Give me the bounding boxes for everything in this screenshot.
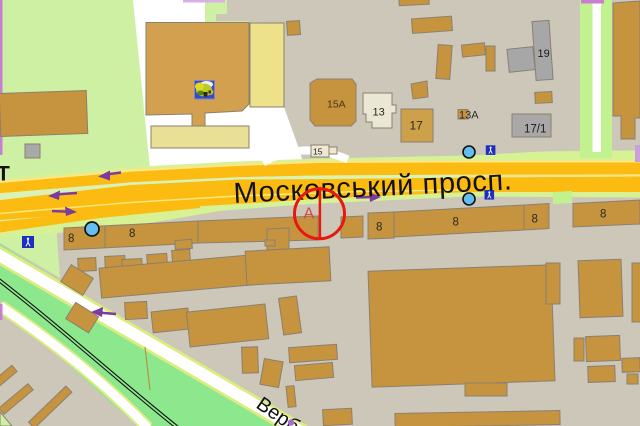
svg-text:17: 17: [410, 119, 424, 133]
svg-text:8: 8: [600, 209, 606, 221]
svg-text:19: 19: [538, 48, 550, 60]
svg-text:13: 13: [373, 107, 385, 119]
svg-text:Т: Т: [0, 163, 10, 186]
svg-text:8: 8: [68, 233, 74, 245]
svg-text:8: 8: [129, 228, 135, 240]
svg-text:8: 8: [532, 214, 538, 226]
svg-text:15А: 15А: [327, 99, 346, 111]
svg-text:А: А: [304, 206, 315, 223]
svg-text:13А: 13А: [459, 110, 479, 122]
svg-text:17/1: 17/1: [524, 124, 546, 136]
svg-text:8: 8: [453, 217, 459, 229]
svg-text:8: 8: [376, 222, 382, 234]
svg-text:15: 15: [313, 147, 323, 157]
